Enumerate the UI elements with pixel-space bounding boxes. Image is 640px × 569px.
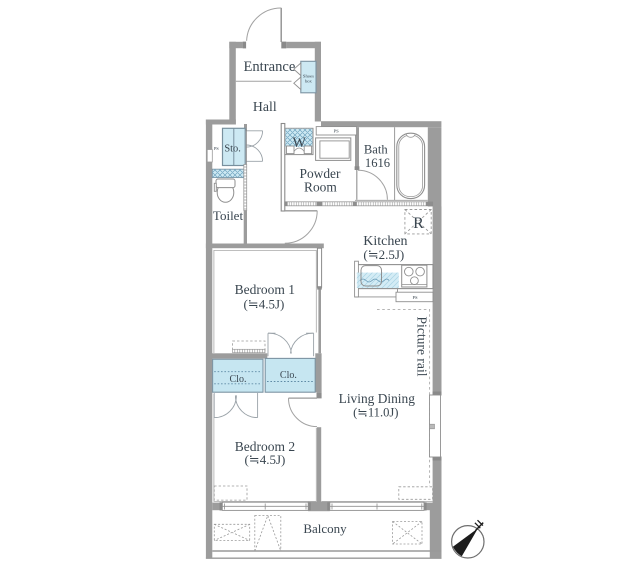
svg-text:Hall: Hall	[253, 99, 277, 114]
svg-text:Shoes: Shoes	[303, 73, 314, 78]
svg-text:Entrance: Entrance	[243, 59, 295, 75]
svg-text:Living Dining: Living Dining	[339, 391, 416, 406]
svg-text:Balcony: Balcony	[303, 521, 347, 536]
svg-text:(≒4.5J): (≒4.5J)	[244, 452, 285, 467]
svg-text:Bath: Bath	[364, 143, 388, 157]
svg-text:(≒2.5J): (≒2.5J)	[363, 247, 404, 262]
svg-text:Bedroom 1: Bedroom 1	[235, 282, 295, 297]
svg-text:R: R	[413, 215, 424, 232]
svg-text:Picture rail: Picture rail	[415, 317, 430, 377]
svg-text:1616: 1616	[365, 156, 390, 170]
svg-text:PS: PS	[412, 295, 418, 300]
svg-text:W: W	[292, 135, 306, 151]
svg-text:Toilet: Toilet	[213, 208, 244, 223]
svg-text:(≒11.0J): (≒11.0J)	[353, 406, 398, 420]
svg-text:box: box	[305, 79, 313, 84]
svg-text:PS: PS	[214, 146, 219, 151]
svg-text:Clo.: Clo.	[280, 370, 297, 381]
svg-text:Clo.: Clo.	[230, 374, 247, 385]
svg-text:(≒4.5J): (≒4.5J)	[243, 297, 284, 312]
svg-text:Room: Room	[304, 179, 337, 194]
svg-text:PS: PS	[334, 129, 340, 134]
svg-text:Sto.: Sto.	[224, 144, 240, 155]
